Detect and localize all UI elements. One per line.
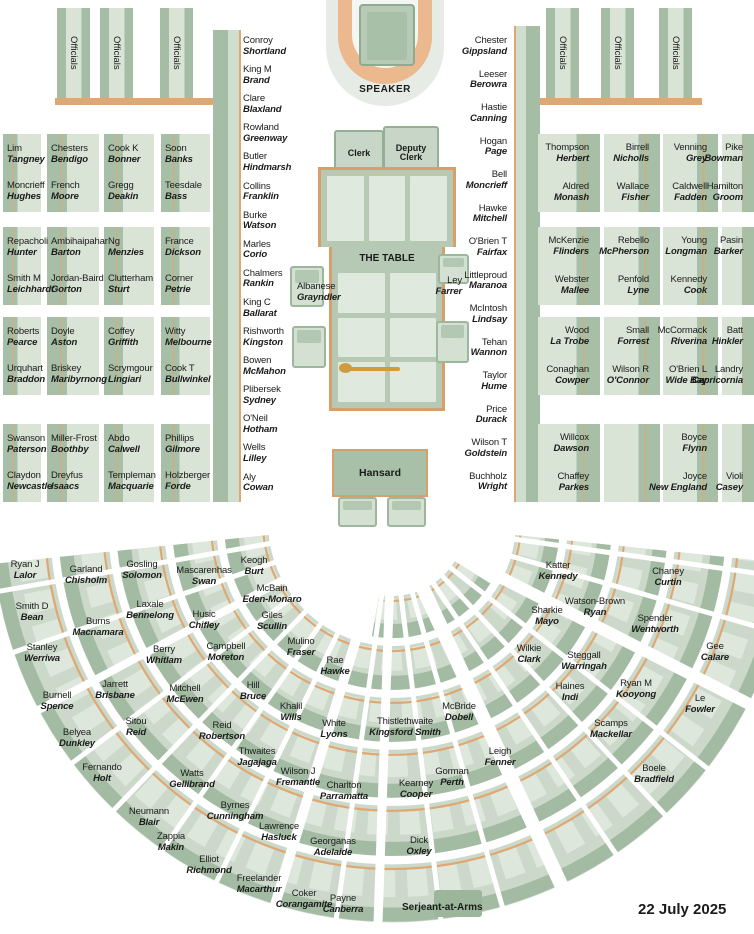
seat-label: McBainEden-Monaro	[242, 584, 301, 605]
seat-label: WellsLilley	[243, 443, 266, 464]
seat-label: Watson-BrownRyan	[565, 597, 625, 618]
electorate-name: Hinkler	[712, 337, 743, 348]
electorate-name: Leichhardt	[7, 285, 54, 296]
electorate-name: Lindsay	[470, 315, 507, 326]
electorate-name: Bean	[16, 613, 49, 624]
electorate-name: Parramatta	[320, 792, 368, 803]
electorate-name: Fadden	[672, 193, 707, 204]
seat-label: SitouReid	[126, 717, 147, 738]
officials-label: Officials	[612, 36, 623, 70]
seat-label: JoyceNew England	[649, 472, 707, 493]
electorate-name: Hawke	[320, 667, 349, 678]
electorate-name: Warringah	[561, 662, 606, 673]
electorate-name: Bennelong	[126, 611, 174, 622]
seat-label: NeumannBlair	[129, 807, 169, 828]
electorate-name: Brisbane	[95, 691, 134, 702]
electorate-name: Menzies	[108, 248, 144, 259]
seat-label: Cook TBullwinkel	[165, 364, 210, 385]
seat-label: ElliotRichmond	[186, 855, 231, 876]
electorate-name: McPherson	[599, 247, 649, 258]
seat-label: GeorganasAdelaide	[310, 837, 356, 858]
seat-label: CaldwellFadden	[672, 182, 707, 203]
seat-label: MulinoFraser	[287, 637, 315, 658]
electorate-name: Moncrieff	[466, 181, 507, 192]
electorate-name: Corio	[243, 250, 271, 261]
seat-label: WebsterMallee	[555, 275, 589, 296]
electorate-name: Macarthur	[237, 885, 282, 896]
electorate-name: Page	[480, 147, 507, 158]
seat-label: HainesIndi	[556, 682, 585, 703]
officials-bar	[530, 98, 702, 105]
seat-label: GoslingSolomon	[122, 560, 162, 581]
electorate-name: Monash	[554, 193, 589, 204]
seat-label: RebelloMcPherson	[599, 236, 649, 257]
seat-label: BattHinkler	[712, 326, 743, 347]
electorate-name: Moore	[51, 192, 80, 203]
electorate-name: Barton	[51, 248, 108, 259]
seat-label: BirrellNicholls	[613, 143, 649, 164]
electorate-name: Eden-Monaro	[242, 595, 301, 606]
seat-label: BerryWhitlam	[146, 645, 182, 666]
electorate-name: Indi	[556, 693, 585, 704]
seat-label: DoyleAston	[51, 327, 77, 348]
electorate-name: Perth	[435, 778, 468, 789]
electorate-name: La Trobe	[550, 337, 589, 348]
seat-label: BurnellSpence	[41, 691, 74, 712]
electorate-name: Banks	[165, 155, 193, 166]
seat-label: BriskeyMaribyrnong	[51, 364, 107, 385]
seat-label: AbdoCalwell	[108, 434, 140, 455]
seat-label: HoganPage	[480, 137, 507, 158]
seat-label: KhalilWills	[280, 702, 302, 723]
seat-label: ClutterhamSturt	[108, 274, 153, 295]
electorate-name: Deakin	[108, 192, 138, 203]
electorate-name: Herbert	[545, 154, 589, 165]
officials-bench: Officials	[601, 8, 634, 98]
electorate-name: Solomon	[122, 571, 162, 582]
electorate-name: Hunter	[7, 248, 48, 259]
electorate-name: Werriwa	[24, 654, 60, 665]
seat-label: Smith DBean	[16, 602, 49, 623]
seat-label: GormanPerth	[435, 767, 468, 788]
electorate-name: Hasluck	[259, 833, 299, 844]
seat-label: SteggallWarringah	[561, 651, 606, 672]
seat-label-prime-minister: Albanese Grayndler	[297, 282, 341, 303]
seat-label: CharltonParramatta	[320, 781, 368, 802]
government-frontbench-strip	[213, 30, 241, 502]
electorate-name: Calare	[701, 653, 729, 664]
electorate-name: Chisholm	[65, 576, 107, 587]
officials-bench: Officials	[100, 8, 133, 98]
seat-label: ChalmersRankin	[243, 269, 282, 290]
seat-label: HolzbergerForde	[165, 471, 210, 492]
electorate-name: Holt	[82, 774, 121, 785]
mace-icon	[346, 367, 400, 371]
electorate-name: Ryan	[565, 608, 625, 619]
electorate-name: New England	[649, 483, 707, 494]
seat-label: KearneyCooper	[399, 779, 433, 800]
electorate-name: Robertson	[199, 732, 245, 743]
electorate-name: Mallee	[555, 286, 589, 297]
seat-label: MitchellMcEwen	[166, 684, 203, 705]
seat-label: Jordan-BairdGorton	[51, 274, 104, 295]
seat-label: ThompsonHerbert	[545, 143, 589, 164]
seat-label: AlyCowan	[243, 473, 273, 494]
seat-label: MoncrieffHughes	[7, 181, 45, 202]
seat-label: RishworthKingston	[243, 327, 284, 348]
seat-label: CollinsFranklin	[243, 182, 279, 203]
electorate-name: Watson	[243, 221, 276, 232]
seat-label: Ryan MKooyong	[616, 679, 656, 700]
table-cell	[369, 176, 406, 241]
electorate-name: Mayo	[531, 617, 562, 628]
seat-label: PayneCanberra	[323, 894, 364, 915]
seat-label: SharkieMayo	[531, 606, 562, 627]
seat-label: MarlesCorio	[243, 240, 271, 261]
electorate-name: Calwell	[108, 445, 140, 456]
seat-label: King CBallarat	[243, 298, 277, 319]
electorate-name: Ballarat	[243, 309, 277, 320]
table-cell	[338, 318, 385, 358]
seat-label: DreyfusIsaacs	[51, 471, 83, 492]
seat-label: KeoghBurt	[241, 556, 268, 577]
seat-label: O'Brien TFairfax	[469, 237, 507, 258]
seat-label: FranceDickson	[165, 237, 201, 258]
electorate-name: Isaacs	[51, 482, 83, 493]
electorate-name: Wright	[469, 482, 507, 493]
seat-label: McKenzieFlinders	[548, 236, 589, 257]
seat-label: UrquhartBraddon	[7, 364, 45, 385]
electorate-name: Petrie	[165, 285, 193, 296]
electorate-name: Kingston	[243, 338, 284, 349]
seat-label: SoonBanks	[165, 144, 193, 165]
electorate-name: Bruce	[240, 692, 266, 703]
electorate-name: Spence	[41, 702, 74, 713]
seat-label: LaxaleBennelong	[126, 600, 174, 621]
officials-label: Officials	[68, 36, 79, 70]
electorate-name: Bonner	[108, 155, 140, 166]
electorate-name: Burt	[241, 567, 268, 578]
electorate-name: Bass	[165, 192, 202, 203]
electorate-name: Casey	[716, 483, 743, 494]
seat-label: McCormackRiverina	[658, 326, 707, 347]
seat-label: HusicChifley	[189, 610, 220, 631]
seat-label: RaeHawke	[320, 656, 349, 677]
deputy-clerk-label: Deputy Clerk	[393, 144, 429, 163]
seat-label: DickOxley	[406, 836, 431, 857]
seat-label: RepacholiHunter	[7, 237, 48, 258]
seat-label: CoffeyGriffith	[108, 327, 138, 348]
seat-label: AldredMonash	[554, 182, 589, 203]
seat-label: PikeBowman	[704, 143, 743, 164]
seat-label: LeFowler	[685, 694, 715, 715]
electorate-name: Sydney	[243, 396, 281, 407]
seat-label: JarrettBrisbane	[95, 680, 134, 701]
electorate-name: Maribyrnong	[51, 375, 107, 386]
seat-label: GarlandChisholm	[65, 565, 107, 586]
seat-label: PasinBarker	[714, 236, 743, 257]
opposition-frontbench-strip	[514, 26, 540, 502]
officials-bench: Officials	[57, 8, 90, 98]
seat-label: ChaffeyParkes	[557, 472, 589, 493]
seat-label: ConaghanCowper	[546, 365, 589, 386]
seat-label: KennedyCook	[671, 275, 707, 296]
electorate-name: Moreton	[207, 653, 246, 664]
electorate-name: Macquarie	[108, 482, 156, 493]
seat-label: FernandoHolt	[82, 763, 121, 784]
electorate-name: Lingiari	[108, 375, 153, 386]
electorate-name: Wannon	[471, 348, 507, 359]
electorate-name: Boothby	[51, 445, 97, 456]
seat-label: ChestersBendigo	[51, 144, 88, 165]
table-cell	[327, 176, 364, 241]
electorate-name: Hume	[481, 382, 507, 393]
electorate-name: Bendigo	[51, 155, 88, 166]
electorate-name: McMahon	[243, 367, 286, 378]
seat-label: GilesScullin	[257, 611, 287, 632]
seat-label: GreggDeakin	[108, 181, 138, 202]
seat-label: PlibersekSydney	[243, 385, 281, 406]
electorate-name: Wentworth	[631, 625, 679, 636]
seat-label: HastieCanning	[470, 103, 507, 124]
electorate-name: Mackellar	[590, 730, 632, 741]
electorate-name: Pearce	[7, 338, 39, 349]
hansard-chair	[387, 497, 426, 527]
seat-label: LimTangney	[7, 144, 45, 165]
electorate-name: Riverina	[658, 337, 707, 348]
electorate-name: Dawson	[553, 444, 589, 455]
table-cell	[410, 176, 447, 241]
electorate-name: Cowan	[243, 483, 273, 494]
hansard-chair	[338, 497, 377, 527]
officials-label: Officials	[557, 36, 568, 70]
electorate-name: Cooper	[399, 790, 433, 801]
seat-label: Ryan JLalor	[11, 560, 40, 581]
seat-label: WillcoxDawson	[553, 433, 589, 454]
seat-label: TaylorHume	[481, 371, 507, 392]
electorate-name: Canberra	[323, 905, 364, 916]
seat-label: Smith MLeichhardt	[7, 274, 54, 295]
seat-label: ConroyShortland	[243, 36, 286, 57]
electorate-name: Clark	[517, 655, 541, 666]
seat-label: ThwaitesJagajaga	[237, 747, 276, 768]
seat-label: NgMenzies	[108, 237, 144, 258]
electorate-name: Mitchell	[473, 214, 507, 225]
clerk-label: Clerk	[348, 149, 371, 158]
seat-label: SmallForrest	[617, 326, 649, 347]
seat-label: SwansonPaterson	[7, 434, 46, 455]
seat-label: CampbellMoreton	[207, 642, 246, 663]
electorate-name: Cowper	[546, 376, 589, 387]
seat-label: AmbihaipaharBarton	[51, 237, 108, 258]
officials-bar	[55, 98, 223, 105]
electorate-name: Bowman	[704, 154, 743, 165]
electorate-name: Flinders	[548, 247, 589, 258]
electorate-name: Paterson	[7, 445, 46, 456]
electorate-name: Cook	[671, 286, 707, 297]
seat-label: RowlandGreenway	[243, 123, 287, 144]
seat-label: BellMoncrieff	[466, 170, 507, 191]
electorate-name: Kennedy	[538, 572, 577, 583]
electorate-name: Blair	[129, 818, 169, 829]
seat-label: PenfoldLyne	[618, 275, 649, 296]
electorate-name: Richmond	[186, 866, 231, 877]
hansard-desk: Hansard	[332, 449, 428, 497]
seat-label: FreelanderMacarthur	[237, 874, 282, 895]
seat-label: WoodLa Trobe	[550, 326, 589, 347]
electorate-name: Oxley	[406, 847, 431, 858]
seat-label: LeighFenner	[485, 747, 516, 768]
speaker-chair-enclosure: SPEAKER	[326, 0, 444, 106]
seat-label: BurkeWatson	[243, 211, 276, 232]
electorate-name: Franklin	[243, 192, 279, 203]
officials-label: Officials	[171, 36, 182, 70]
electorate-name: Farrer	[435, 287, 462, 298]
seat-label: CornerPetrie	[165, 274, 193, 295]
seat-label: PriceDurack	[476, 405, 507, 426]
seat-label: McBrideDobell	[442, 702, 476, 723]
seat-label: YoungLongman	[665, 236, 707, 257]
electorate-name: Aston	[51, 338, 77, 349]
electorate-name: Fraser	[287, 648, 315, 659]
speaker-label: SPEAKER	[326, 84, 444, 95]
officials-label: Officials	[670, 36, 681, 70]
seat-label: Miller-FrostBoothby	[51, 434, 97, 455]
electorate-name: Lyons	[320, 730, 347, 741]
seat-label: LandryCapricornia	[692, 365, 743, 386]
table-cell	[390, 273, 437, 313]
electorate-name: Braddon	[7, 375, 45, 386]
the-table-label: THE TABLE	[329, 253, 445, 264]
seat-label: ScrymgourLingiari	[108, 364, 153, 385]
serjeant-at-arms-label: Serjeant-at-Arms	[402, 902, 483, 913]
seat-label: Wilson RO'Connor	[607, 365, 649, 386]
seat-label: VioliCasey	[716, 472, 743, 493]
electorate-name: Gellibrand	[169, 780, 214, 791]
seat-label: HillBruce	[240, 681, 266, 702]
seat-label: MascarenhasSwan	[176, 566, 231, 587]
electorate-name: Canning	[470, 114, 507, 125]
electorate-name: Fowler	[685, 705, 715, 716]
seat-label: WittyMelbourne	[165, 327, 212, 348]
electorate-name: Bradfield	[634, 775, 674, 786]
electorate-name: Lyne	[618, 286, 649, 297]
member-name: King C	[243, 298, 277, 309]
seat-label: ClareBlaxland	[243, 94, 281, 115]
date-label: 22 July 2025	[638, 901, 726, 918]
electorate-name: Flynn	[681, 444, 707, 455]
electorate-name: Melbourne	[165, 338, 212, 349]
seat-label: ChaneyCurtin	[652, 567, 684, 588]
officials-label: Officials	[111, 36, 122, 70]
electorate-name: Grayndler	[297, 293, 341, 304]
officials-bench: Officials	[546, 8, 579, 98]
dispatch-chair	[292, 326, 326, 368]
seat-label: ThistlethwaiteKingsford Smith	[369, 717, 441, 738]
seat-label: BelyeaDunkley	[59, 728, 95, 749]
seat-label: Wilson TGoldstein	[465, 438, 507, 459]
seat-label: BoyceFlynn	[681, 433, 707, 454]
electorate-name: Greenway	[243, 134, 287, 145]
seat-label: BowenMcMahon	[243, 356, 286, 377]
electorate-name: Fisher	[617, 193, 649, 204]
seat-label: LeeserBerowra	[470, 70, 507, 91]
table-cell	[390, 318, 437, 358]
electorate-name: Kingsford Smith	[369, 728, 441, 739]
electorate-name: Nicholls	[613, 154, 649, 165]
electorate-name: Sturt	[108, 285, 153, 296]
electorate-name: Whitlam	[146, 656, 182, 667]
electorate-name: Fremantle	[276, 778, 320, 789]
officials-bench: Officials	[160, 8, 193, 98]
electorate-name: Scullin	[257, 622, 287, 633]
electorate-name: Dunkley	[59, 739, 95, 750]
electorate-name: Curtin	[652, 578, 684, 589]
speaker-chair	[359, 4, 415, 66]
hansard-label: Hansard	[359, 467, 401, 479]
electorate-name: Makin	[157, 843, 185, 854]
seat-label: O'NeilHotham	[243, 414, 277, 435]
electorate-name: Bullwinkel	[165, 375, 210, 386]
seat-label-opposition-leader: Ley Farrer	[435, 276, 462, 297]
electorate-name: Brand	[243, 76, 272, 87]
electorate-name: Fairfax	[469, 248, 507, 259]
electorate-name: Dickson	[165, 248, 201, 259]
seat-label: PhillipsGilmore	[165, 434, 200, 455]
electorate-name: Shortland	[243, 47, 286, 58]
electorate-name: Durack	[476, 415, 507, 426]
electorate-name: Griffith	[108, 338, 138, 349]
seat-label: ReidRobertson	[199, 721, 245, 742]
electorate-name: Gorton	[51, 285, 104, 296]
electorate-name: Macnamara	[73, 628, 124, 639]
electorate-name: Blaxland	[243, 105, 281, 116]
electorate-name: Grey	[674, 154, 707, 165]
electorate-name: Chifley	[189, 621, 220, 632]
seat-label: RobertsPearce	[7, 327, 39, 348]
electorate-name: Jagajaga	[237, 758, 276, 769]
seat-label: King MBrand	[243, 65, 272, 86]
seat-label: StanleyWerriwa	[24, 643, 60, 664]
seat-label: McIntoshLindsay	[470, 304, 507, 325]
electorate-name: Berowra	[470, 80, 507, 91]
electorate-name: Fenner	[485, 758, 516, 769]
seat-label: ZappiaMakin	[157, 832, 185, 853]
electorate-name: McEwen	[166, 695, 203, 706]
electorate-name: Dobell	[442, 713, 476, 724]
electorate-name: Reid	[126, 728, 147, 739]
seat-label: LawrenceHasluck	[259, 822, 299, 843]
seat-label: ScampsMackellar	[590, 719, 632, 740]
electorate-name: Kooyong	[616, 690, 656, 701]
electorate-name: Forrest	[617, 337, 649, 348]
electorate-name: Hindmarsh	[243, 163, 291, 174]
seat-label: WilkieClark	[517, 644, 541, 665]
electorate-name: Lalor	[11, 571, 40, 582]
electorate-name: Forde	[165, 482, 210, 493]
electorate-name: Longman	[665, 247, 707, 258]
seat-label: Cook KBonner	[108, 144, 140, 165]
seat-label: TeesdaleBass	[165, 181, 202, 202]
electorate-name: Hotham	[243, 425, 277, 436]
electorate-name: Newcastle	[7, 482, 52, 493]
seat-label: ChesterGippsland	[462, 36, 507, 57]
seat-label: TemplemanMacquarie	[108, 471, 156, 492]
seat-label: SpenderWentworth	[631, 614, 679, 635]
electorate-name: Gilmore	[165, 445, 200, 456]
seat-label: ByrnesCunningham	[207, 801, 264, 822]
seat-label: WattsGellibrand	[169, 769, 214, 790]
